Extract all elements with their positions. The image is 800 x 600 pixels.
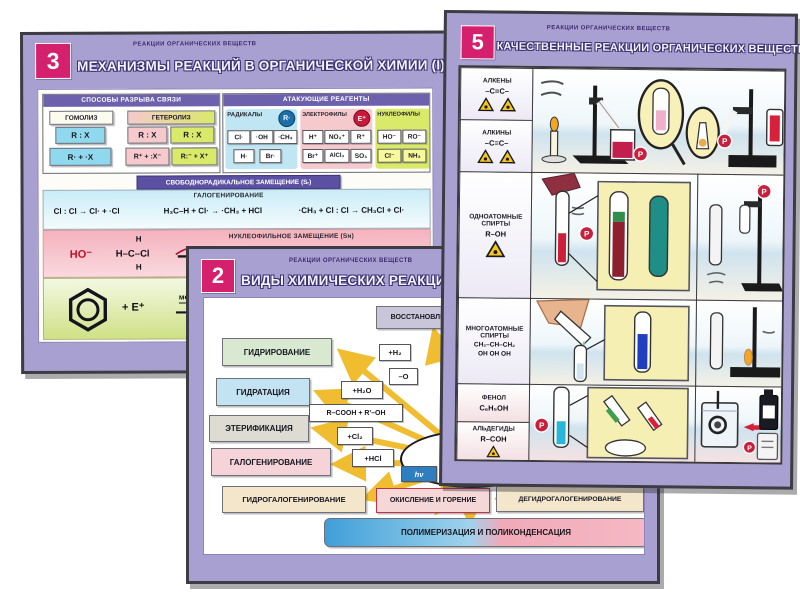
aldehydes-name: АЛЬДЕГИДЫ [472,425,514,433]
benzene-ring-icon [66,288,110,332]
radical-item: H· [233,149,254,163]
hydrogenation-box: ГИДРИРОВАНИЕ [222,338,332,366]
heterolysis-label: ГЕТЕРОЛИЗ [127,110,215,124]
experiment-scene-alcohol-test: Р [530,172,699,302]
poster-5-content: АЛКЕНЫ –C=C– АЛКИНЫ –C≡C– ОДНОАТОМНЫЕ СП… [454,65,786,464]
poster-5-title: КАЧЕСТВЕННЫЕ РЕАКЦИИ ОРГАНИЧЕСКИХ ВЕЩЕСТ… [497,41,800,56]
experiment-scene-silver-mirror: Р [694,386,783,465]
sn-substrate: H–C–Cl [116,249,150,260]
nucleophile-item: Cl⁻ [377,149,401,163]
poster-5-qualitative-reactions: 5 РЕАКЦИИ ОРГАНИЧЕСКИХ ВЕЩЕСТВ КАЧЕСТВЕН… [439,10,798,490]
heterolysis-formula-green-2: R:⁻ + X⁺ [171,147,217,165]
radical-item: ·CH₃ [273,130,297,144]
radical-substitution-band: ГАЛОГЕНИРОВАНИЕ Cl : Cl → Cl· + ·Cl H₃C–… [43,189,431,230]
poster-5-series-title: РЕАКЦИИ ОРГАНИЧЕСКИХ ВЕЩЕСТВ [547,25,670,32]
chip-plus-h2o: +H₂O [341,381,383,399]
silver-mirror-illustration: Р [695,387,782,464]
polyols-cell: МНОГОАТОМНЫЕ СПИРТЫ CH₂–CH–CH₂ OH OH OH [457,297,532,386]
alkynes-name: АЛКИНЫ [482,129,511,137]
electrophile-item: Br⁺ [302,149,323,163]
chip-plus-hcl: +HCl [352,449,394,467]
nucleophiles-group: НУКЛЕОФИЛЫ HO⁻ RO⁻ Cl⁻ NH₃ [375,109,430,169]
experiment-scene-heated-tube [695,300,784,389]
halogenation-label: ГАЛОГЕНИРОВАНИЕ [194,192,264,199]
radical-symbol: R· [278,110,295,127]
electrophile-item: NO₂⁺ [324,130,349,144]
electrophile-item: AlCl₃ [324,149,349,163]
alcohol-test-illustration: Р [531,173,698,301]
polyols-formula-line1: CH₂–CH–CH₂ [474,342,515,349]
phenol-cell: ФЕНОЛ C₆H₅OH [457,383,531,424]
poster-2-number-badge: 2 [201,259,235,293]
phenol-formula: C₆H₅OH [479,404,508,413]
sr-equation-2: H₃C–H + Cl· → ·CH₃ + HCl [164,206,263,215]
phenol-name: ФЕНОЛ [482,394,506,402]
heterolysis-formula-pink-2: R⁺ + :X⁻ [125,147,169,165]
bond-cleavage-header: СПОСОБЫ РАЗРЫВА СВЯЗИ [43,94,219,107]
chip-plus-h2: +H₂ [379,344,411,361]
alkynes-formula: –C≡C– [485,139,509,148]
flammable-hazard-icon [478,98,494,112]
nucleophile-item: HO⁻ [377,130,401,144]
heterolysis-formula-pink-1: R : X [127,126,167,143]
homolysis-formula-2: R· + ·X [49,148,111,166]
mechanism-banner: СВОБОДНОРАДИКАЛЬНОЕ ЗАМЕЩЕНИЕ (Sᵣ) [137,175,341,190]
flammable-hazard-icon [486,446,500,458]
alkenes-cell: АЛКЕНЫ –C=C– [460,67,535,122]
heated-tube-illustration [696,301,783,388]
oxidation-box: ОКИСЛЕНИЕ И ГОРЕНИЕ [376,488,490,513]
scene-badge-letter: Р [747,445,752,452]
electrophile-item: SO₃ [350,149,371,163]
scene-badge-letter: Р [638,150,644,159]
electrophiles-group: ЭЛЕКТРОФИЛЫ E⁺ H⁺ NO₂⁺ R⁺ Br⁺ AlCl₃ SO₃ [300,109,372,169]
radicals-label: РАДИКАЛЫ [227,112,262,118]
radical-item: Br· [259,149,281,163]
se-electrophile: + E⁺ [122,301,145,314]
flammable-hazard-icon [485,241,505,258]
sr-equation-1: Cl : Cl → Cl· + ·Cl [54,207,120,216]
experiment-scene-combustion: Р Р [531,68,786,177]
hydrohalogenation-box: ГИДРОГАЛОГЕНИРОВАНИЕ [222,486,366,513]
dehydrohalogenation-box: ДЕГИДРОГАЛОГЕНИРОВАНИЕ [496,486,644,512]
flammable-hazard-icon [499,150,515,164]
combustion-illustration: Р Р [532,69,785,176]
radicals-group: РАДИКАЛЫ R· Cl· ·OH ·CH₃ H· Br· [225,109,297,169]
sn-label: НУКЛЕОФИЛЬНОЕ ЗАМЕЩЕНИЕ (Sɴ) [229,233,354,240]
experiment-scene-phenol-test: Р [528,384,697,464]
nucleophiles-label: НУКЛЕОФИЛЫ [377,112,420,118]
nucleophile-item: NH₃ [402,149,426,163]
aldehydes-cell: АЛЬДЕГИДЫ R–COH [456,421,530,462]
alkynes-cell: АЛКИНЫ –C≡C– [459,119,534,174]
chip-minus-o: –O [389,368,418,385]
alcohols-formula: R–OH [485,230,506,239]
homolysis-formula-1: R : X [55,127,105,144]
alcohols-cell: ОДНОАТОМНЫЕ СПИРТЫ R–OH [458,171,533,300]
electrophile-item: R⁺ [350,130,371,144]
halogenation-box: ГАЛОГЕНИРОВАНИЕ [211,448,331,476]
scene-badge-letter: Р [584,229,590,238]
sn-h-bottom: H [136,263,142,272]
electrophile-item: H⁺ [302,130,323,144]
attacking-reagents-panel: АТАКУЮЩИЕ РЕАГЕНТЫ РАДИКАЛЫ R· Cl· ·OH ·… [222,93,430,174]
experiment-scene-tube-stand: Р [696,174,785,303]
hazard-icons [477,150,515,164]
polyols-name: МНОГОАТОМНЫЕ СПИРТЫ [459,325,531,341]
glycerol-illustration [530,299,697,387]
poster-3-number-badge: 3 [35,43,71,79]
polymerization-box: ПОЛИМЕРИЗАЦИЯ И ПОЛИКОНДЕНСАЦИЯ [324,518,645,547]
scene-badge-letter: Р [722,137,728,146]
heterolysis-formula-green-1: R : X [170,126,214,143]
scene-badge-letter: Р [761,187,767,196]
hydration-box: ГИДРАТАЦИЯ [216,378,310,406]
nucleophile-item: RO⁻ [402,130,426,144]
bond-cleavage-panel: СПОСОБЫ РАЗРЫВА СВЯЗИ ГОМОЛИЗ R : X R· +… [42,93,220,174]
poster-5-number-badge: 5 [460,25,494,59]
photo-of-chemistry-wallcharts: { "colors": { "badge_pink": "#d4206d", "… [0,0,800,600]
poster-2-series-title: РЕАКЦИИ ОРГАНИЧЕСКИХ ВЕЩЕСТВ [289,258,412,264]
hazard-icons [478,98,516,112]
chip-light-hv: hν [401,466,437,482]
aldehydes-formula: R–COH [480,435,506,444]
radical-item: ·OH [250,130,273,144]
esterification-box: ЭТЕРИФИКАЦИЯ [209,415,309,442]
poster-3-title: МЕХАНИЗМЫ РЕАКЦИЙ В ОРГАНИЧЕСКОЙ ХИМИИ (… [77,58,445,74]
alkenes-name: АЛКЕНЫ [483,77,512,85]
alkenes-formula: –C=C– [485,87,509,96]
experiment-scene-glycerol [529,298,698,388]
homolysis-label: ГОМОЛИЗ [49,111,113,125]
sn-h-top: H [136,235,142,244]
flammable-hazard-icon [477,150,493,164]
electrophile-symbol: E⁺ [353,110,370,127]
phenol-test-illustration: Р [529,385,696,463]
chip-acid-alcohol: R–COOH + R'–OH [309,404,403,422]
flammable-hazard-icon [500,98,516,112]
chip-plus-cl2: +Cl₂ [337,427,373,445]
electrophiles-label: ЭЛЕКТРОФИЛЫ [302,112,347,118]
poster-2-title: ВИДЫ ХИМИЧЕСКИХ РЕАКЦИЙ [241,273,456,288]
scene-badge-letter: Р [539,421,545,430]
poster-3-series-title: РЕАКЦИИ ОРГАНИЧЕСКИХ ВЕЩЕСТВ [133,41,256,47]
radical-item: Cl· [227,130,250,144]
attacking-reagents-header: АТАКУЮЩИЕ РЕАГЕНТЫ [223,94,429,107]
sr-equation-3: ·CH₃ + Cl : Cl → CH₃Cl + Cl· [299,206,405,215]
polyols-formula-line2: OH OH OH [478,351,511,358]
alcohols-name: ОДНОАТОМНЫЕ СПИРТЫ [460,213,532,229]
tube-stand-illustration: Р [697,175,784,302]
sn-nucleophile: HO⁻ [70,248,92,261]
